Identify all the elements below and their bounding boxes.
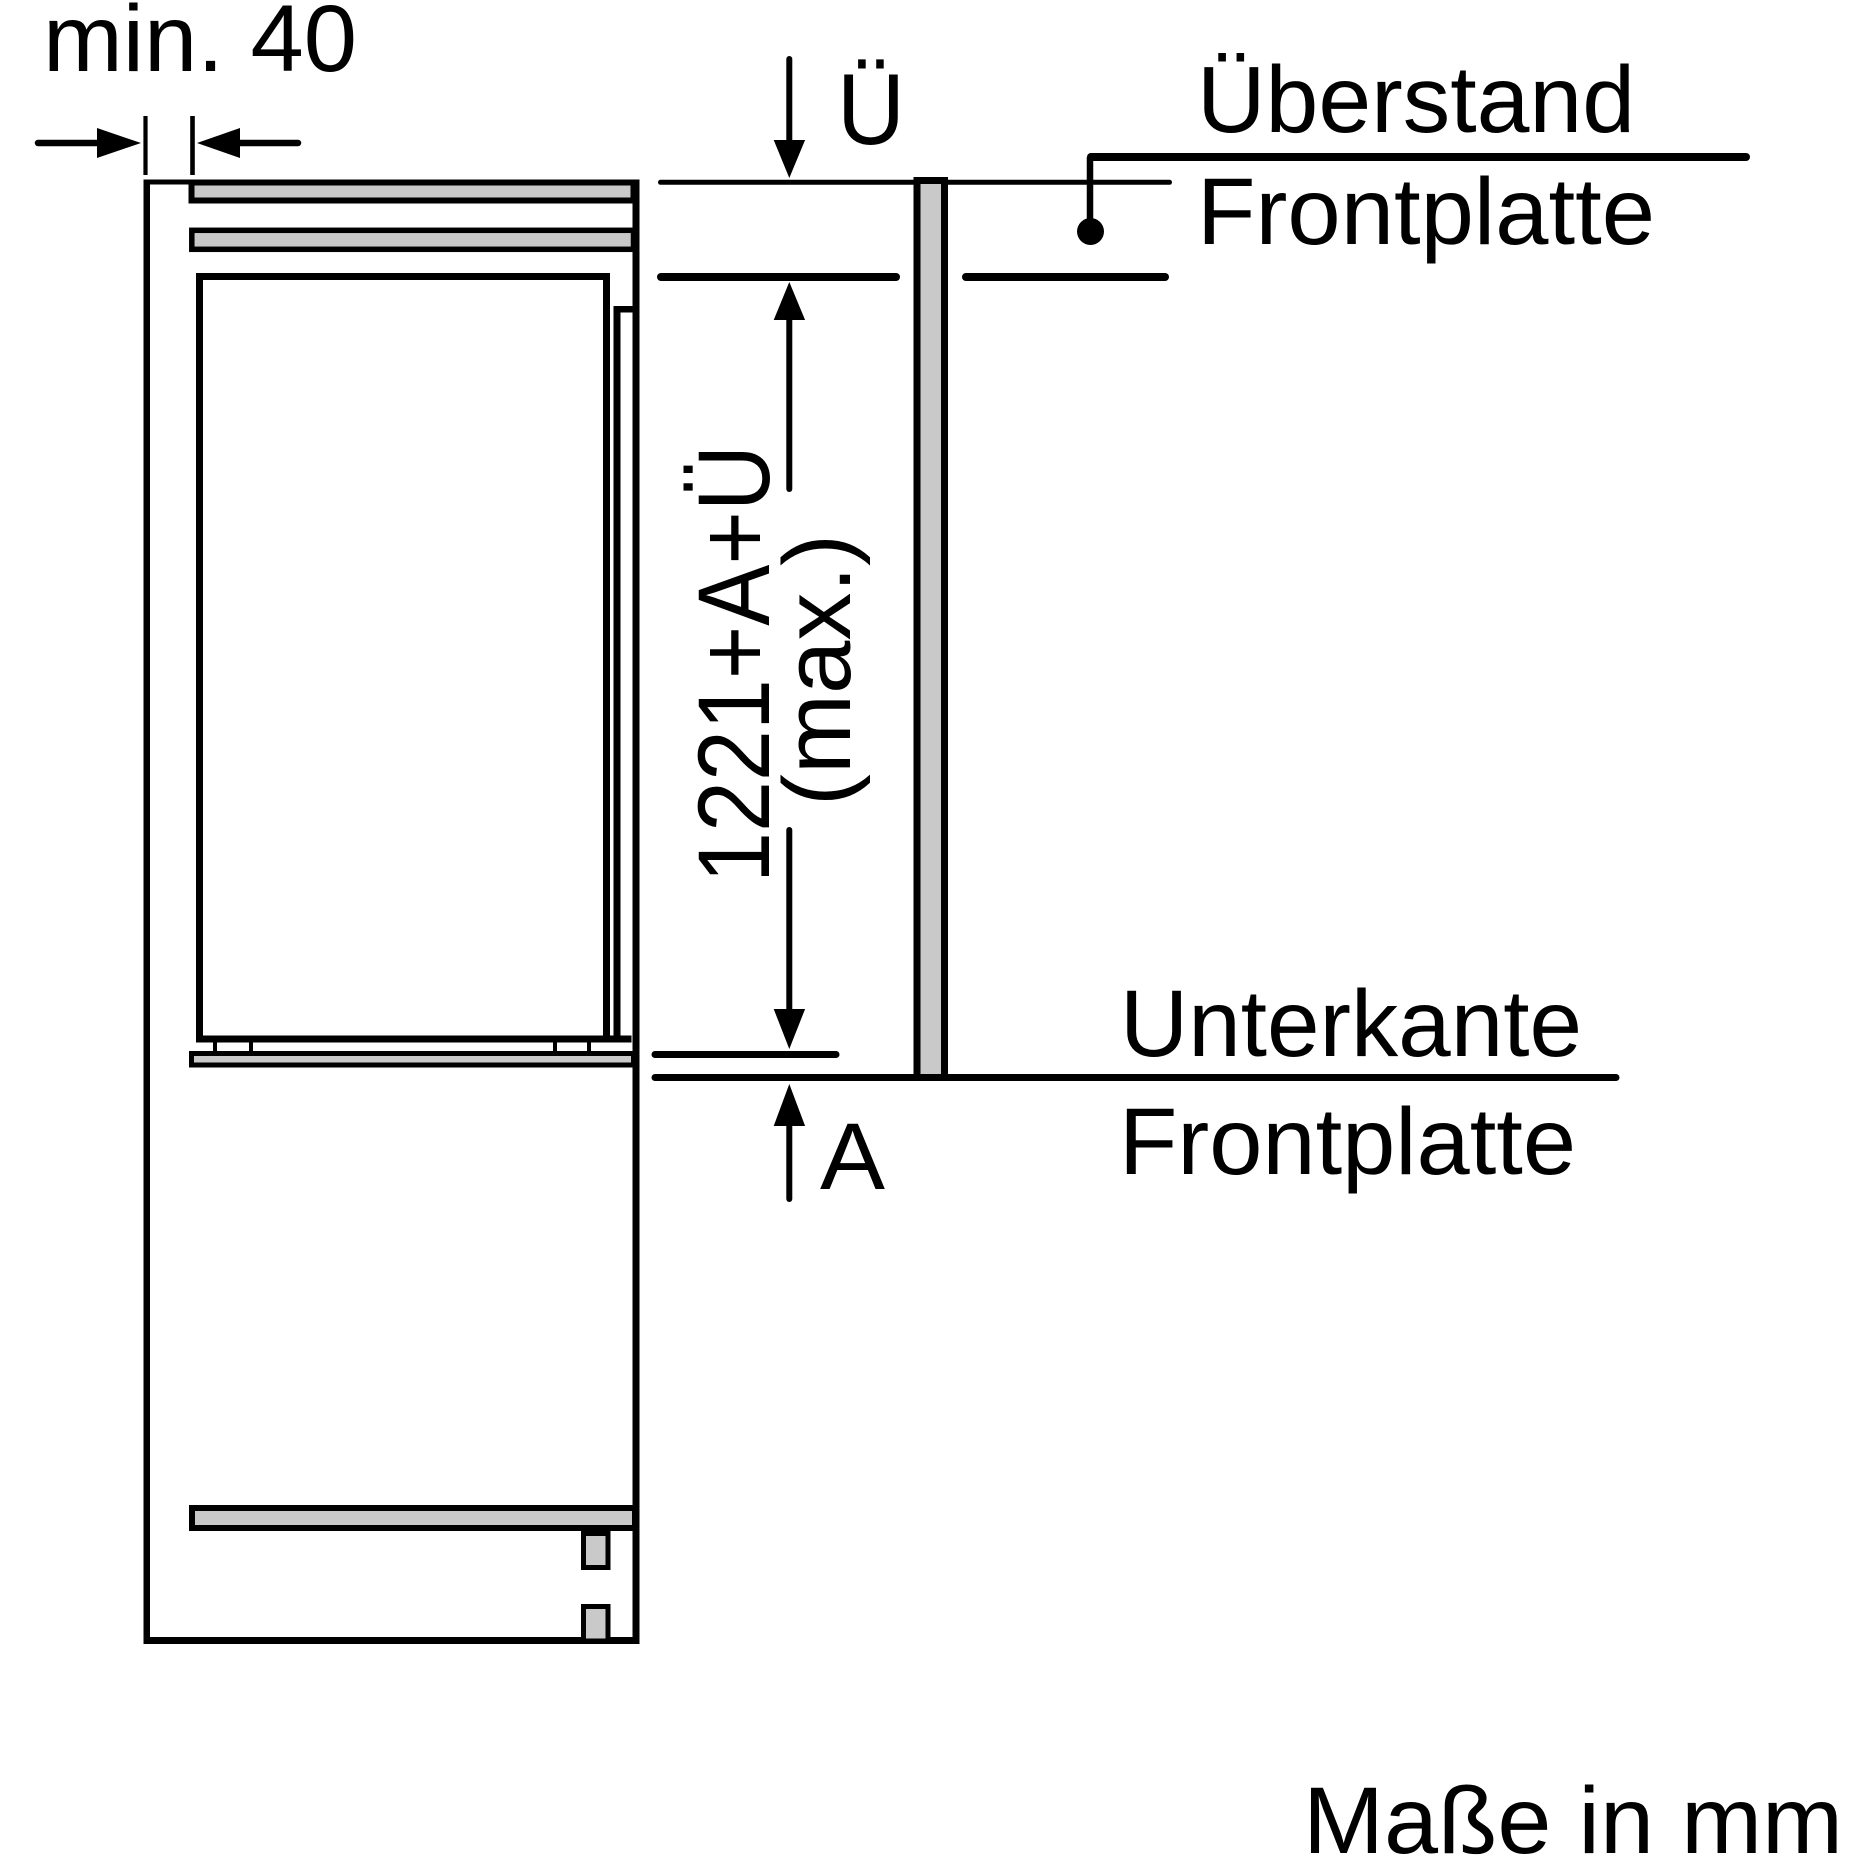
svg-text:Unterkante: Unterkante — [1120, 971, 1582, 1077]
svg-text:min. 40: min. 40 — [43, 0, 357, 92]
svg-text:A: A — [820, 1104, 886, 1210]
svg-text:Frontplatte: Frontplatte — [1197, 159, 1655, 265]
svg-text:Maße in mm: Maße in mm — [1303, 1768, 1843, 1859]
svg-text:Frontplatte: Frontplatte — [1119, 1089, 1576, 1195]
svg-text:(max.): (max.) — [764, 534, 871, 806]
svg-text:Ü: Ü — [837, 54, 905, 166]
svg-text:Überstand: Überstand — [1197, 47, 1635, 153]
